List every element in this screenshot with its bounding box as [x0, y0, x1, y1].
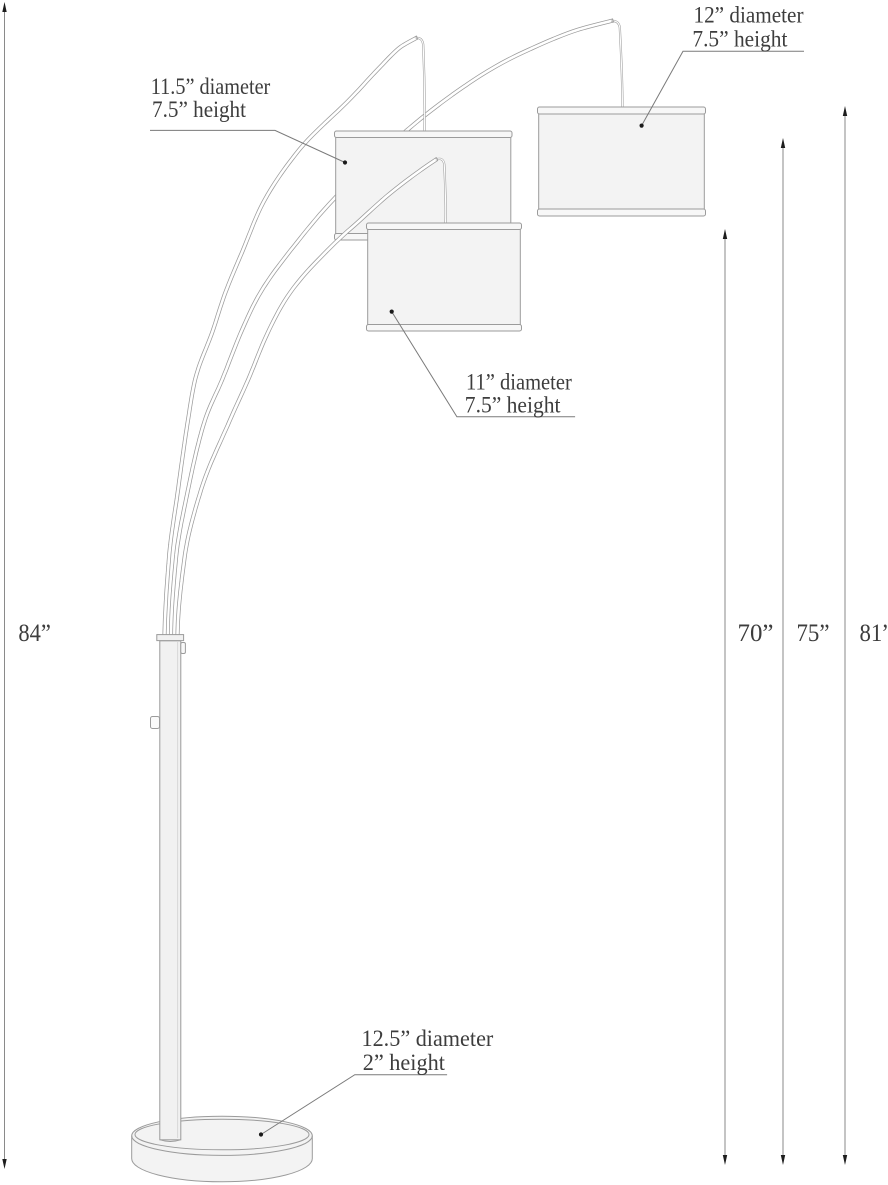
- svg-text:7.5” height: 7.5” height: [692, 27, 787, 53]
- svg-text:84”: 84”: [18, 620, 51, 647]
- svg-text:12.5” diameter: 12.5” diameter: [362, 1026, 494, 1052]
- svg-text:2” height: 2” height: [363, 1050, 446, 1076]
- svg-text:81”: 81”: [860, 620, 888, 647]
- svg-text:70”: 70”: [738, 620, 774, 647]
- svg-text:11” diameter: 11” diameter: [466, 369, 572, 395]
- svg-text:7.5” height: 7.5” height: [152, 97, 246, 123]
- svg-text:12” diameter: 12” diameter: [694, 3, 804, 29]
- svg-text:75”: 75”: [797, 620, 830, 647]
- svg-text:7.5” height: 7.5” height: [465, 393, 561, 419]
